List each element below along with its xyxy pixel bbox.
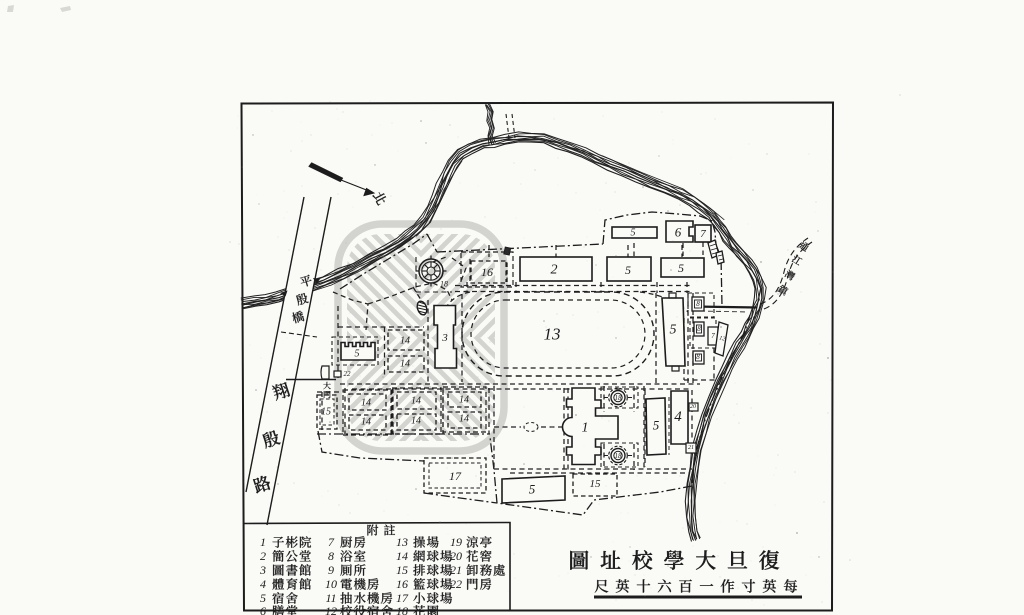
svg-text:5: 5 — [529, 482, 536, 497]
svg-text:21: 21 — [450, 563, 462, 577]
svg-text:14: 14 — [411, 416, 421, 427]
svg-text:14: 14 — [400, 359, 410, 370]
svg-text:7: 7 — [328, 535, 335, 549]
svg-text:6: 6 — [260, 604, 266, 615]
svg-text:20: 20 — [690, 404, 696, 410]
svg-text:3: 3 — [441, 332, 448, 344]
svg-text:22: 22 — [450, 577, 462, 591]
svg-text:18: 18 — [615, 394, 623, 402]
svg-text:15: 15 — [396, 563, 408, 577]
svg-text:4: 4 — [260, 577, 266, 591]
svg-text:12: 12 — [325, 604, 337, 615]
svg-text:9: 9 — [328, 563, 334, 577]
svg-text:8: 8 — [328, 549, 334, 563]
svg-text:5: 5 — [631, 228, 636, 239]
svg-text:15: 15 — [321, 407, 331, 418]
svg-text:4: 4 — [674, 409, 682, 425]
svg-text:18: 18 — [440, 280, 448, 289]
svg-text:14: 14 — [361, 417, 371, 428]
svg-text:14: 14 — [459, 414, 469, 425]
svg-text:14: 14 — [396, 549, 408, 563]
svg-text:5: 5 — [678, 261, 684, 275]
svg-text:7: 7 — [711, 332, 715, 340]
svg-text:5: 5 — [670, 323, 677, 338]
svg-text:14: 14 — [400, 336, 410, 347]
svg-text:18: 18 — [396, 604, 408, 615]
svg-text:14: 14 — [361, 398, 371, 409]
svg-text:16: 16 — [481, 265, 493, 279]
svg-text:20: 20 — [450, 549, 462, 563]
svg-text:5: 5 — [260, 591, 266, 605]
svg-text:17: 17 — [396, 591, 409, 605]
svg-text:13: 13 — [396, 535, 408, 549]
svg-text:5: 5 — [653, 418, 660, 433]
svg-text:17: 17 — [449, 469, 462, 483]
svg-text:8: 8 — [696, 353, 700, 361]
svg-text:2: 2 — [260, 549, 266, 563]
svg-text:7: 7 — [700, 228, 706, 240]
svg-text:14: 14 — [459, 395, 469, 406]
svg-text:21: 21 — [688, 445, 694, 451]
svg-text:18: 18 — [615, 452, 623, 460]
svg-text:8: 8 — [696, 300, 700, 308]
svg-text:8: 8 — [697, 325, 701, 333]
svg-text:15: 15 — [590, 478, 602, 490]
svg-text:11: 11 — [325, 591, 336, 605]
svg-text:1: 1 — [582, 421, 589, 436]
svg-text:5: 5 — [355, 349, 360, 360]
svg-text:2: 2 — [551, 263, 558, 278]
svg-text:10: 10 — [325, 577, 337, 591]
svg-text:6: 6 — [675, 225, 682, 240]
svg-text:5: 5 — [625, 263, 631, 277]
svg-text:14: 14 — [411, 396, 421, 407]
svg-text:16: 16 — [396, 577, 408, 591]
svg-text:22: 22 — [344, 370, 352, 378]
svg-text:3: 3 — [259, 563, 266, 577]
svg-text:1: 1 — [260, 535, 266, 549]
